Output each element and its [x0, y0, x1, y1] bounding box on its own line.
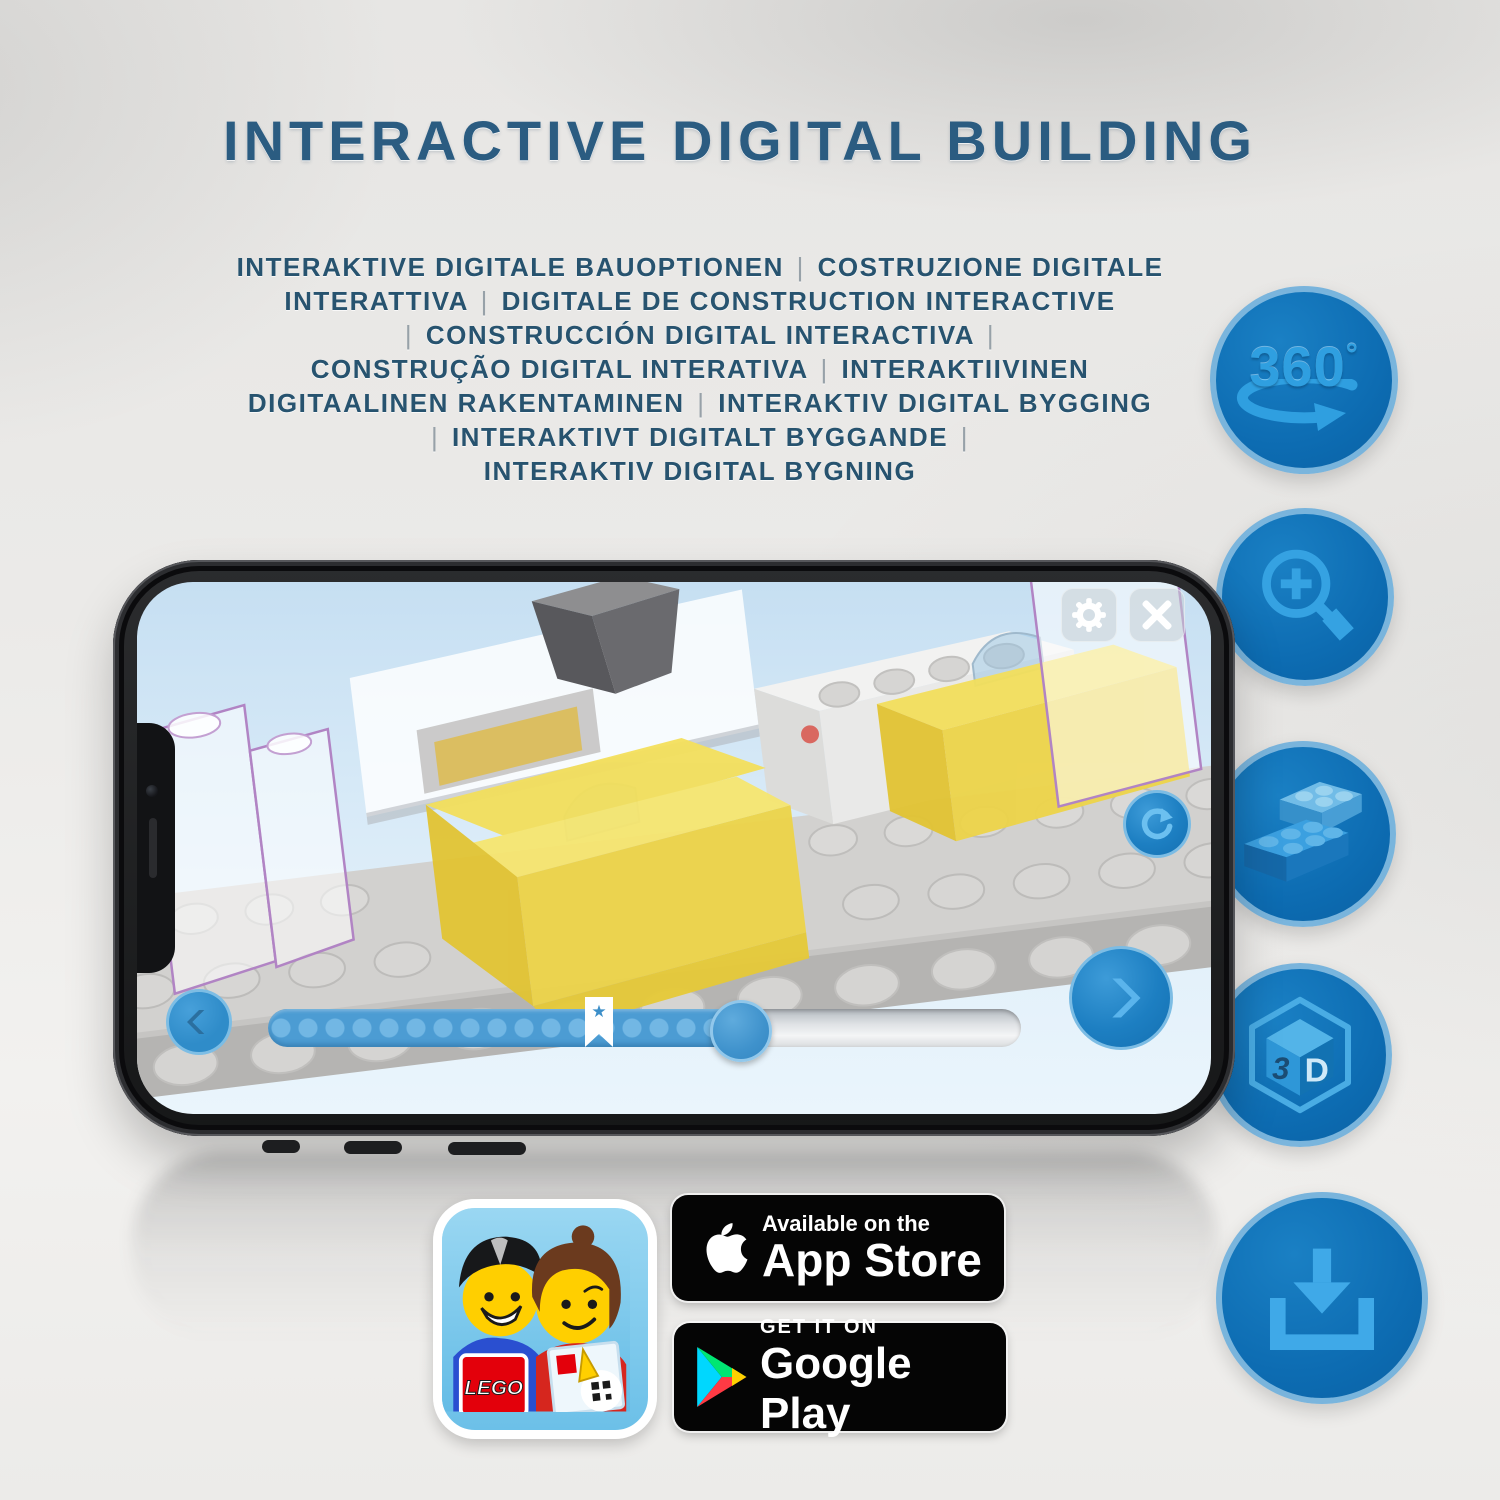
- feature-download-badge: [1216, 1192, 1428, 1404]
- gear-icon: [1070, 596, 1108, 634]
- 3d-cube-icon: 3 D: [1240, 995, 1360, 1115]
- feature-zoom-badge: [1216, 508, 1394, 686]
- settings-button[interactable]: [1061, 588, 1117, 642]
- front-camera: [146, 785, 158, 797]
- feature-3d-view-badge: 3 D: [1208, 963, 1392, 1147]
- lego-minifigures-art: LEGO: [442, 1208, 630, 1412]
- earpiece-speaker: [149, 818, 157, 878]
- lego-instructions-app-icon[interactable]: LEGO: [433, 1199, 657, 1439]
- close-icon: [1140, 598, 1174, 632]
- google-play-badge[interactable]: GET IT ON Google Play: [674, 1323, 1006, 1431]
- subtitle-line: INTERATTIVA | DIGITALE DE CONSTRUCTION I…: [145, 284, 1255, 318]
- app-store-tagline: Available on the: [762, 1212, 982, 1236]
- build-progress-bar[interactable]: ★: [268, 1009, 1021, 1047]
- volume-down-button: [448, 1142, 526, 1155]
- volume-up-button: [344, 1141, 402, 1154]
- google-play-name: Google Play: [760, 1339, 1006, 1439]
- next-step-button[interactable]: [1069, 946, 1173, 1050]
- chevron-left-icon: [185, 1006, 213, 1038]
- multilingual-subtitle: INTERAKTIVE DIGITALE BAUOPTIONEN | COSTR…: [145, 250, 1255, 488]
- page-title: INTERACTIVE DIGITAL BUILDING: [0, 108, 1480, 173]
- subtitle-line: INTERAKTIVE DIGITALE BAUOPTIONEN | COSTR…: [145, 250, 1255, 284]
- feature-brick-options-badge: [1210, 741, 1396, 927]
- download-icon: [1257, 1233, 1387, 1363]
- svg-text:D: D: [1305, 1052, 1329, 1089]
- subtitle-line: | CONSTRUCCIÓN DIGITAL INTERACTIVA |: [145, 318, 1255, 352]
- 360-degree-icon: 360°: [1249, 339, 1358, 395]
- subtitle-line: INTERAKTIV DIGITAL BYGNING: [145, 454, 1255, 488]
- close-button[interactable]: [1129, 588, 1185, 642]
- rotate-model-button[interactable]: [1123, 790, 1191, 858]
- subtitle-line: DIGITAALINEN RAKENTAMINEN | INTERAKTIV D…: [145, 386, 1255, 420]
- mute-switch: [262, 1140, 300, 1153]
- phone-notch: [137, 723, 175, 973]
- chevron-right-icon: [1099, 972, 1143, 1024]
- svg-text:3: 3: [1272, 1051, 1289, 1086]
- subtitle-line: CONSTRUÇÃO DIGITAL INTERATIVA | INTERAKT…: [145, 352, 1255, 386]
- zoom-in-magnifier-icon: [1250, 542, 1360, 652]
- marketing-image: INTERACTIVE DIGITAL BUILDING INTERAKTIVE…: [0, 0, 1500, 1500]
- smartphone: ★: [113, 560, 1235, 1136]
- app-store-badge[interactable]: Available on the App Store: [672, 1195, 1004, 1301]
- feature-360-rotation-badge: 360°: [1210, 286, 1398, 474]
- svg-text:LEGO: LEGO: [464, 1377, 523, 1400]
- google-play-tagline: GET IT ON: [760, 1315, 1006, 1339]
- progress-thumb[interactable]: [710, 1000, 772, 1062]
- progress-fill: [268, 1009, 761, 1047]
- lego-bricks-icon: [1242, 775, 1364, 893]
- app-store-name: App Store: [762, 1236, 982, 1284]
- rotate-icon: [1138, 805, 1176, 843]
- lego-builder-app-screen: ★: [137, 582, 1211, 1114]
- apple-logo-icon: [694, 1215, 752, 1281]
- previous-step-button[interactable]: [166, 989, 232, 1055]
- subtitle-line: | INTERAKTIVT DIGITALT BYGGANDE |: [145, 420, 1255, 454]
- google-play-logo-icon: [696, 1347, 750, 1407]
